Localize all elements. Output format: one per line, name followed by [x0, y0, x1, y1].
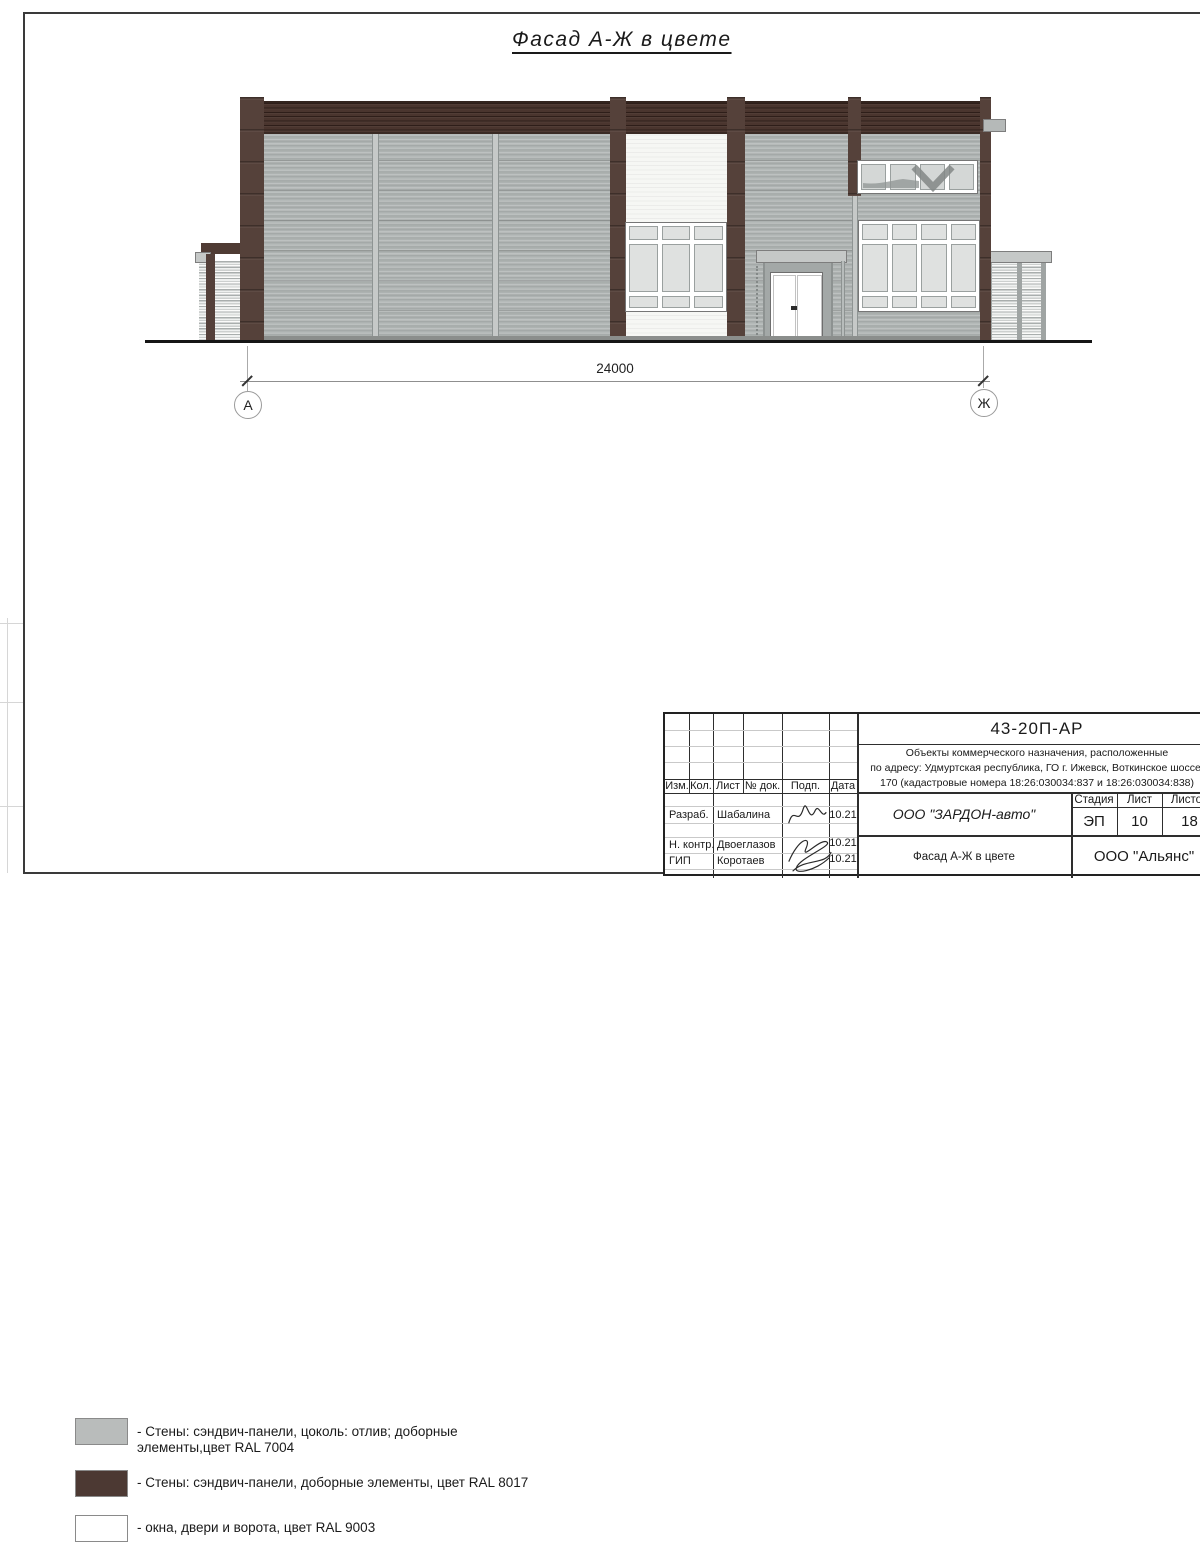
louver-post-right: [1041, 261, 1046, 341]
glass-reflection: [857, 160, 978, 194]
panel-joint: [372, 130, 379, 341]
window-pane: [629, 244, 658, 292]
window-pane: [892, 224, 918, 240]
window-pane: [921, 244, 947, 292]
window-pane: [694, 296, 723, 308]
tb-doc-number: 43-20П-АР: [857, 714, 1200, 744]
signature-shabalina: [785, 798, 829, 832]
tb-stage-label: Стадия: [1071, 792, 1117, 807]
entrance-door: [770, 272, 823, 338]
window-pane: [662, 244, 691, 292]
tb-sheet-label: Лист: [1117, 792, 1162, 807]
tb-faint-row: [665, 746, 857, 747]
tb-name: Коротаев: [717, 853, 765, 869]
downspout: [841, 261, 845, 341]
window-pane: [892, 244, 918, 292]
axis-bubble-zh: Ж: [970, 389, 998, 417]
window-pane: [892, 296, 918, 308]
legend-line: элементы,цвет RAL 7004: [137, 1440, 458, 1456]
door-handle: [791, 306, 797, 310]
tb-company: ООО "ЗАРДОН-авто": [857, 792, 1071, 835]
tb-stage-value: ЭП: [1071, 807, 1117, 835]
tb-col-izm: Изм.: [665, 779, 689, 793]
legend-text-ral9003: - окна, двери и ворота, цвет RAL 9003: [137, 1520, 375, 1536]
window-pane: [921, 296, 947, 308]
tb-project-line: 170 (кадастровые номера 18:26:030034:837…: [857, 776, 1200, 791]
axis-label-zh: Ж: [978, 395, 991, 411]
tb-line: [857, 744, 1200, 745]
legend-text-ral7004: - Стены: сэндвич-панели, цоколь: отлив; …: [137, 1424, 458, 1456]
tb-name: Шабалина: [717, 806, 770, 823]
facade-column: [240, 97, 264, 341]
facade-column: [727, 97, 745, 341]
legend-swatch-ral7004: [75, 1418, 128, 1445]
window-pane: [921, 224, 947, 240]
signature-dvoeglazov-korotaev: [783, 828, 835, 876]
window-pane: [662, 296, 691, 308]
legend-line: - Стены: сэндвич-панели, цоколь: отлив; …: [137, 1424, 458, 1440]
door-anchor-dots: [756, 266, 760, 338]
door-leaf-right: [797, 275, 822, 337]
legend-text-ral8017: - Стены: сэндвич-панели, доборные элемен…: [137, 1475, 528, 1491]
tb-sheets-value: 18: [1162, 807, 1200, 835]
tb-sheet-value: 10: [1117, 807, 1162, 835]
window-pane: [862, 244, 888, 292]
louver-post-left: [206, 254, 215, 341]
tb-faint-row: [665, 730, 857, 731]
window-pane: [629, 296, 658, 308]
tb-col-kol: Кол.: [689, 779, 713, 793]
tb-sheets-label: Листов: [1162, 792, 1200, 807]
tb-col-data: Дата: [829, 779, 857, 793]
tb-project-line: по адресу: Удмуртская республика, ГО г. …: [857, 761, 1200, 776]
panel-joint: [492, 130, 499, 341]
window-pane: [862, 224, 888, 240]
tb-role: Н. контр.: [669, 837, 714, 853]
axis-bubble-a: А: [234, 391, 262, 419]
window-pane: [629, 226, 658, 240]
louver-post-right: [1017, 261, 1022, 341]
tb-faint-row: [665, 762, 857, 763]
tb-project-name: Объекты коммерческого назначения, распол…: [857, 746, 1200, 791]
facade-column: [980, 97, 991, 341]
tb-role: Разраб.: [669, 806, 709, 823]
bay-window: [625, 222, 727, 312]
ground-line: [145, 340, 1092, 343]
tb-name: Двоеглазов: [717, 837, 775, 853]
dimension-label: 24000: [575, 361, 655, 376]
tb-col-doc: № док.: [743, 779, 782, 793]
tb-project-line: Объекты коммерческого назначения, распол…: [857, 746, 1200, 761]
corner-window: [858, 220, 980, 312]
extension-line-left: [247, 346, 248, 391]
tb-sheet-title: Фасад А-Ж в цвете: [857, 835, 1071, 878]
window-pane: [951, 296, 977, 308]
title-block: Изм. Кол. Лист № док. Подп. Дата Разраб.…: [663, 712, 1200, 876]
window-pane: [951, 244, 977, 292]
tb-col-list: Лист: [713, 779, 743, 793]
door-canopy: [756, 250, 847, 263]
tb-date: 10.21: [829, 806, 857, 823]
tb-line: [665, 793, 857, 794]
legend-swatch-ral9003: [75, 1515, 128, 1542]
tb-contractor: ООО "Альянс": [1071, 835, 1200, 878]
legend: - Стены: сэндвич-панели, цоколь: отлив; …: [0, 700, 600, 860]
roof-outlet: [983, 119, 1006, 132]
margin-table-hline: [0, 623, 23, 624]
tb-col-podp: Подп.: [782, 779, 829, 793]
axis-label-a: А: [243, 397, 252, 413]
dimension-line: [240, 381, 990, 382]
window-pane: [862, 296, 888, 308]
window-pane: [694, 244, 723, 292]
window-pane: [662, 226, 691, 240]
legend-swatch-ral8017: [75, 1470, 128, 1497]
window-pane: [694, 226, 723, 240]
facade-column: [610, 97, 626, 341]
tb-role: ГИП: [669, 853, 691, 869]
window-pane: [951, 224, 977, 240]
louver-cap-right: [981, 251, 1052, 263]
facade-drawing: 24000 А Ж: [0, 0, 1200, 420]
